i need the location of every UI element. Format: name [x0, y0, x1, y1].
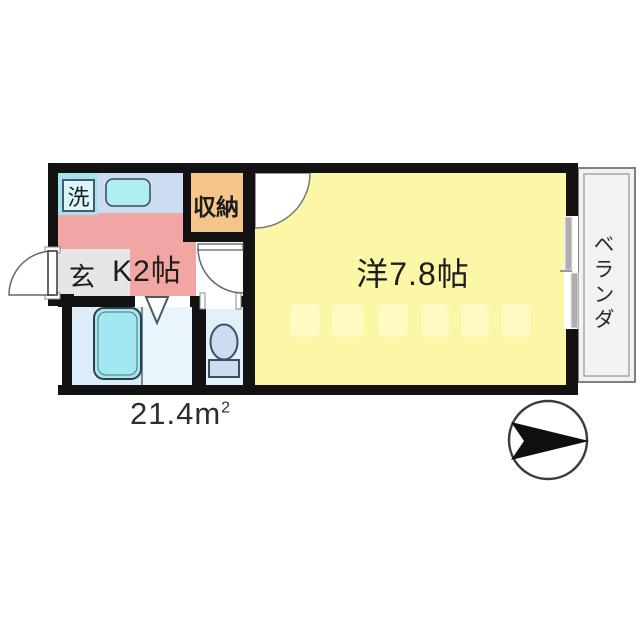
entrance-door-leaf [48, 251, 57, 295]
floorplan-drawing [0, 0, 640, 640]
window-pane-upper [565, 217, 572, 270]
laundry-label: 洗 [62, 179, 95, 212]
total-area-label: 21.4m2 [130, 396, 231, 432]
total-area-superscript: 2 [221, 400, 231, 417]
toilet-bowl [211, 325, 238, 360]
window-pane-lower [571, 273, 578, 328]
toilet-door-opening [203, 294, 238, 309]
main-room-label: 洋7.8帖 [318, 249, 508, 295]
vestibule-door-leaf [198, 244, 243, 250]
compass [509, 401, 589, 479]
total-area-value: 21.4m [130, 396, 221, 431]
toilet-tank [209, 360, 239, 377]
entrance-door-arc [9, 251, 53, 295]
bathtub [94, 308, 141, 379]
kitchen-label: K2帖 [92, 246, 202, 290]
sink-basin [106, 179, 150, 206]
floorplan: 洗 収納 玄 K2帖 洋7.8帖 ベランダ 21.4m2 [0, 0, 640, 640]
toilet-door-jamb-left [200, 293, 205, 309]
washroom-floor [142, 296, 192, 395]
balcony-label: ベランダ [589, 233, 617, 393]
storage-label: 収納 [187, 188, 245, 222]
window-center-tick [560, 270, 572, 272]
toilet-door-jamb-right [236, 293, 241, 309]
